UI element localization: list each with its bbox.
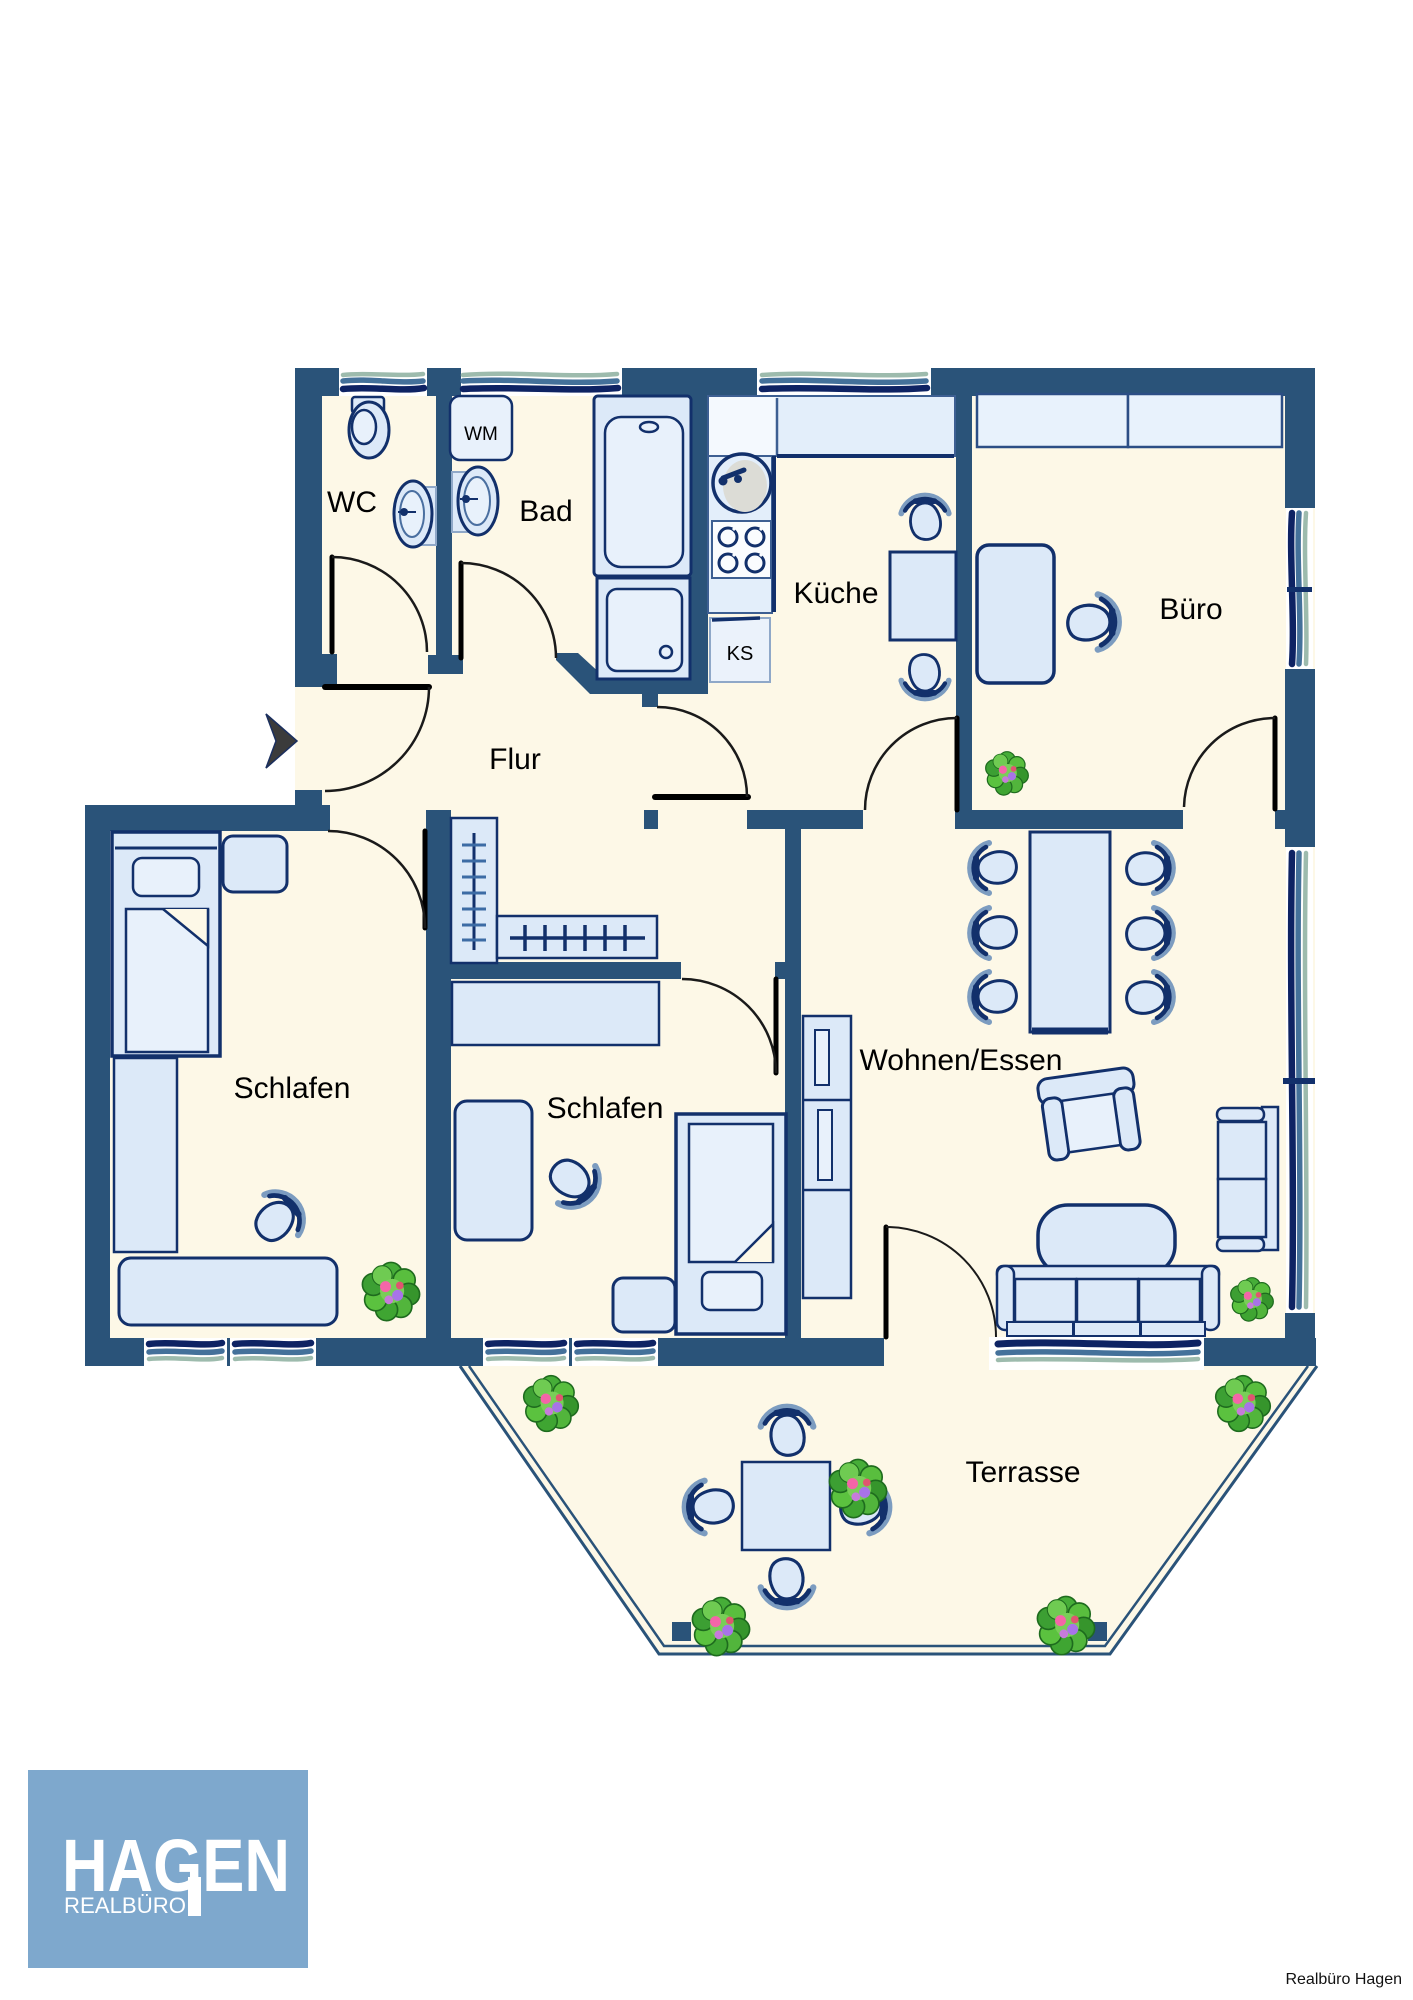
svg-text:Bad: Bad	[519, 495, 572, 528]
svg-text:WM: WM	[464, 424, 498, 445]
svg-text:Terrasse: Terrasse	[965, 1456, 1080, 1489]
svg-text:Flur: Flur	[489, 743, 541, 776]
svg-text:Wohnen/Essen: Wohnen/Essen	[860, 1044, 1063, 1077]
svg-text:Küche: Küche	[793, 577, 878, 610]
svg-text:Schlafen: Schlafen	[234, 1072, 351, 1105]
svg-text:Schlafen: Schlafen	[547, 1092, 664, 1125]
svg-text:WC: WC	[327, 486, 377, 519]
svg-text:Realbüro Hagen: Realbüro Hagen	[1285, 1971, 1402, 1988]
svg-text:Büro: Büro	[1159, 593, 1222, 626]
svg-text:KS: KS	[727, 643, 754, 665]
svg-text:REALBÜRO: REALBÜRO	[64, 1893, 186, 1918]
